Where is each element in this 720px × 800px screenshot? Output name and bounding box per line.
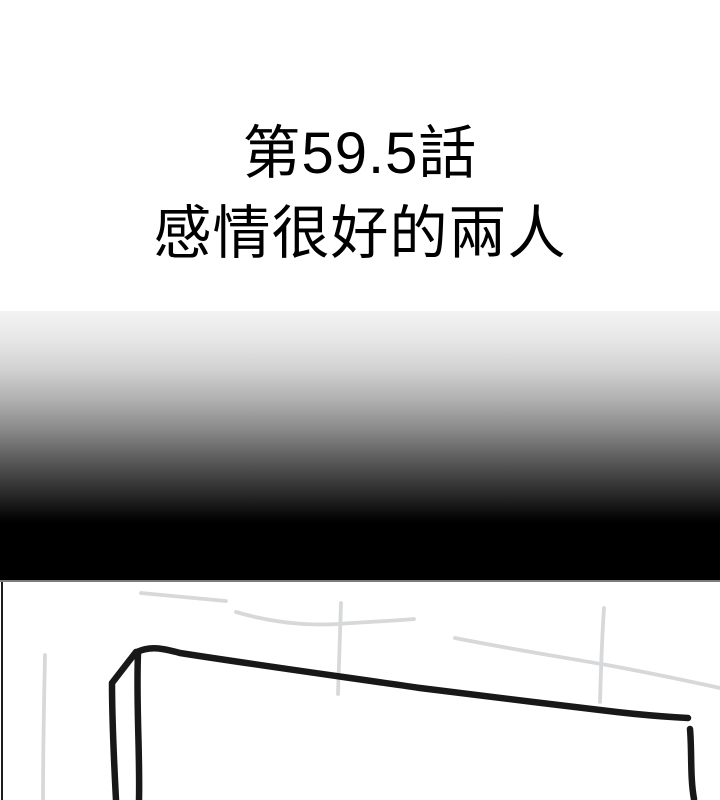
- building-left-outer-edge: [112, 652, 136, 800]
- pencil-guideline: [141, 593, 226, 601]
- pencil-guideline: [455, 638, 720, 688]
- building-right-edge: [690, 729, 694, 799]
- pencil-guideline: [236, 612, 414, 625]
- building-top-edge: [137, 648, 688, 718]
- comic-page: 第59.5話 感情很好的兩人: [0, 0, 720, 800]
- pencil-guideline: [43, 655, 45, 800]
- pencil-guideline: [338, 603, 341, 694]
- gradient-panel: [0, 311, 720, 582]
- pencil-guideline: [600, 608, 604, 702]
- building-left-inner-edge: [137, 653, 139, 800]
- chapter-number: 第59.5話: [0, 114, 720, 194]
- building-sketch: [0, 582, 720, 800]
- sketch-panel: [0, 582, 720, 800]
- chapter-title: 第59.5話 感情很好的兩人: [0, 114, 720, 274]
- chapter-name: 感情很好的兩人: [0, 194, 720, 274]
